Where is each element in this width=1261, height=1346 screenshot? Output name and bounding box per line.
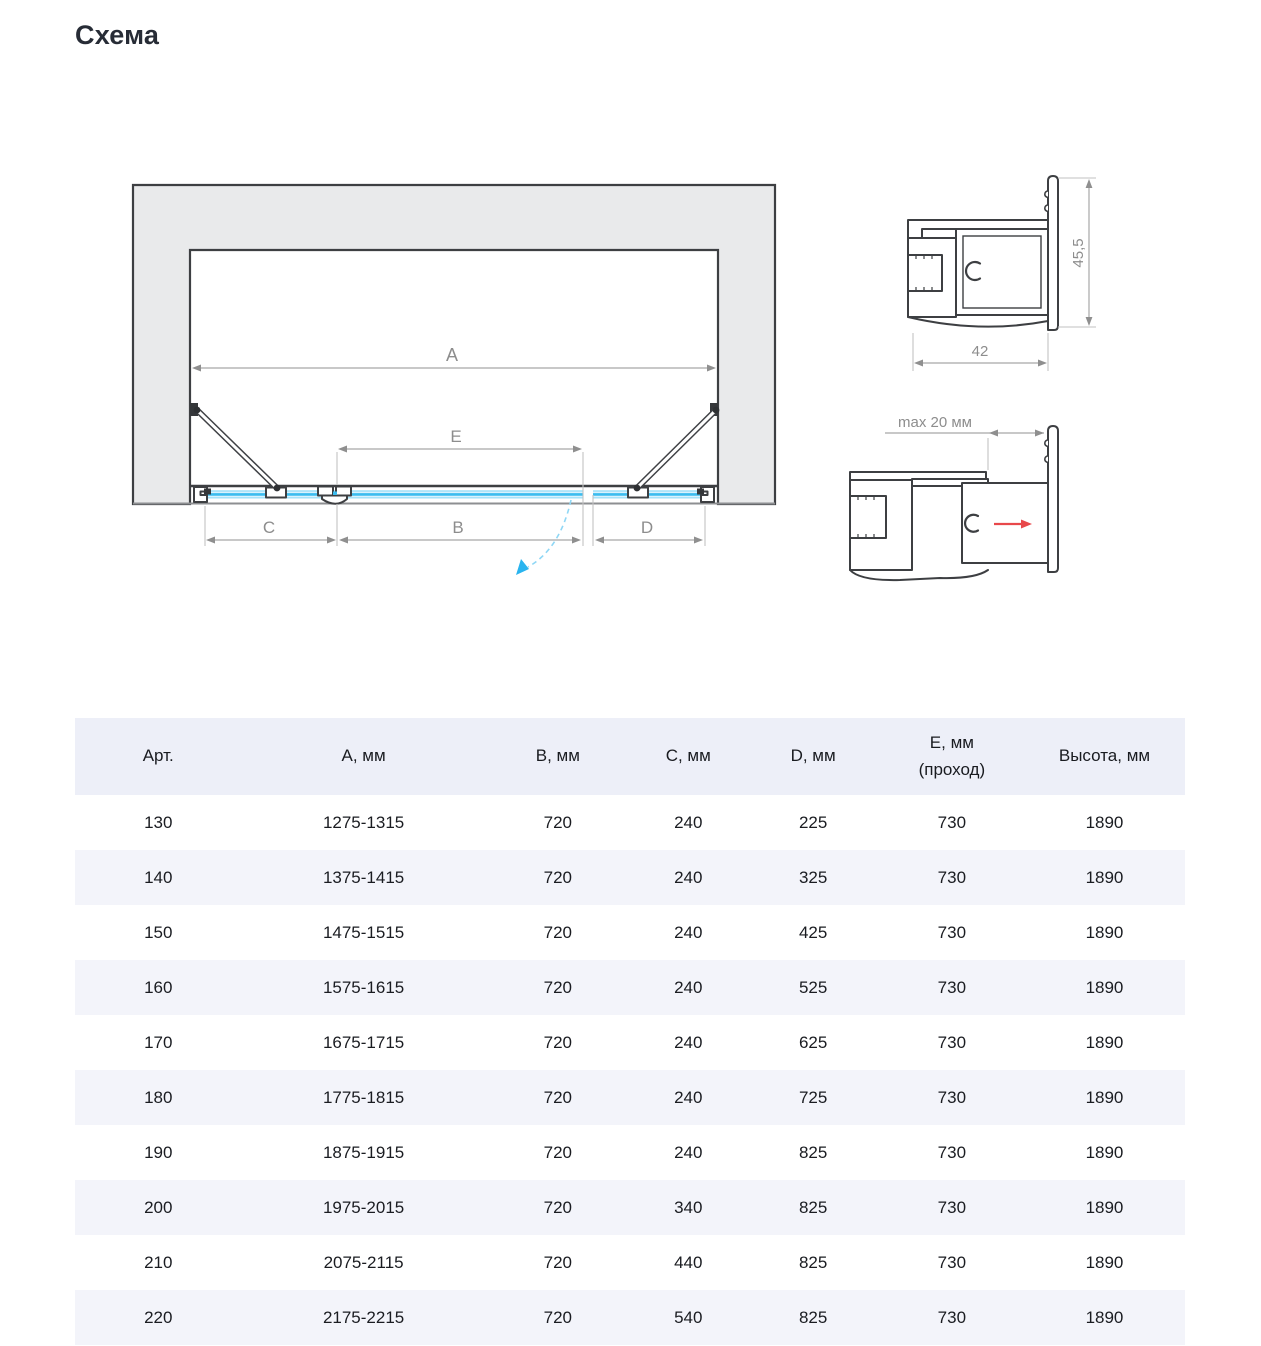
profile-detail-top: 45,5 42 xyxy=(908,176,1096,371)
table-row: 1901875-19157202408257301890 xyxy=(75,1125,1185,1180)
dimension-c: C xyxy=(205,506,336,546)
table-cell: 825 xyxy=(747,1125,880,1180)
table-cell: 200 xyxy=(75,1180,242,1235)
table-cell: 1675-1715 xyxy=(242,1015,486,1070)
table-cell: 625 xyxy=(747,1015,880,1070)
page: Схема A xyxy=(0,0,1261,1346)
table-cell: 1775-1815 xyxy=(242,1070,486,1125)
table-cell: 1890 xyxy=(1024,1015,1185,1070)
table-cell: 720 xyxy=(486,960,630,1015)
column-header: E, мм(проход) xyxy=(880,718,1024,795)
table-row: 1501475-15157202404257301890 xyxy=(75,905,1185,960)
table-cell: 720 xyxy=(486,795,630,850)
table-cell: 340 xyxy=(630,1180,747,1235)
table-cell: 1890 xyxy=(1024,795,1185,850)
dim-a-label: A xyxy=(446,345,458,365)
table-row: 1801775-18157202407257301890 xyxy=(75,1070,1185,1125)
table-body: 1301275-131572024022573018901401375-1415… xyxy=(75,795,1185,1345)
table-row: 2102075-21157204408257301890 xyxy=(75,1235,1185,1290)
dimension-a: A xyxy=(192,345,716,372)
table-cell: 210 xyxy=(75,1235,242,1290)
table-cell: 140 xyxy=(75,850,242,905)
size-table: Арт.A, ммB, ммC, ммD, ммE, мм(проход)Выс… xyxy=(75,718,1185,1345)
dim-arrow-right xyxy=(707,365,716,372)
table-cell: 730 xyxy=(880,1125,1024,1180)
table-cell: 1275-1315 xyxy=(242,795,486,850)
table-cell: 440 xyxy=(630,1235,747,1290)
table-cell: 220 xyxy=(75,1290,242,1345)
table-cell: 730 xyxy=(880,1235,1024,1290)
table-row: 2202175-22157205408257301890 xyxy=(75,1290,1185,1345)
table-cell: 240 xyxy=(630,905,747,960)
table-cell: 1890 xyxy=(1024,1180,1185,1235)
table-cell: 725 xyxy=(747,1070,880,1125)
table-cell: 720 xyxy=(486,1235,630,1290)
profile-detail-bottom: max 20 мм xyxy=(850,414,1058,580)
table-cell: 720 xyxy=(486,905,630,960)
table-cell: 540 xyxy=(630,1290,747,1345)
table-cell: 720 xyxy=(486,1070,630,1125)
table-cell: 190 xyxy=(75,1125,242,1180)
table-cell: 1575-1615 xyxy=(242,960,486,1015)
dimension-width-42: 42 xyxy=(913,333,1048,371)
table-cell: 730 xyxy=(880,1015,1024,1070)
column-header: C, мм xyxy=(630,718,747,795)
column-header: Высота, мм xyxy=(1024,718,1185,795)
table-cell: 730 xyxy=(880,850,1024,905)
table-cell: 2075-2115 xyxy=(242,1235,486,1290)
door-swing-arc xyxy=(516,500,571,575)
diagram-svg: A xyxy=(0,0,1261,660)
table-header-row: Арт.A, ммB, ммC, ммD, ммE, мм(проход)Выс… xyxy=(75,718,1185,795)
table-cell: 1475-1515 xyxy=(242,905,486,960)
table-cell: 1890 xyxy=(1024,960,1185,1015)
table-cell: 225 xyxy=(747,795,880,850)
table-row: 2001975-20157203408257301890 xyxy=(75,1180,1185,1235)
diagram: A xyxy=(0,0,1261,660)
dim-d-label: D xyxy=(641,518,653,537)
column-header: A, мм xyxy=(242,718,486,795)
column-header: B, мм xyxy=(486,718,630,795)
table-cell: 180 xyxy=(75,1070,242,1125)
max-gap-label: max 20 мм xyxy=(898,414,972,431)
table-cell: 325 xyxy=(747,850,880,905)
dim-arrow-left xyxy=(192,365,201,372)
table-row: 1601575-16157202405257301890 xyxy=(75,960,1185,1015)
table-row: 1401375-14157202403257301890 xyxy=(75,850,1185,905)
dimension-b: B xyxy=(339,518,581,544)
dimension-max-20: max 20 мм xyxy=(885,414,1044,470)
table-cell: 730 xyxy=(880,960,1024,1015)
table-cell: 1975-2015 xyxy=(242,1180,486,1235)
table-cell: 1890 xyxy=(1024,850,1185,905)
right-wall-profile xyxy=(697,487,714,502)
table-cell: 240 xyxy=(630,795,747,850)
left-strut xyxy=(190,403,280,491)
table-cell: 2175-2215 xyxy=(242,1290,486,1345)
dim-e-label: E xyxy=(450,427,461,446)
table-cell: 425 xyxy=(747,905,880,960)
table-cell: 730 xyxy=(880,1290,1024,1345)
column-header: Арт. xyxy=(75,718,242,795)
table-cell: 1875-1915 xyxy=(242,1125,486,1180)
table-cell: 720 xyxy=(486,1125,630,1180)
table-cell: 130 xyxy=(75,795,242,850)
table-cell: 720 xyxy=(486,1015,630,1070)
table-cell: 1890 xyxy=(1024,905,1185,960)
profile-height-label: 45,5 xyxy=(1070,238,1087,267)
table-cell: 1890 xyxy=(1024,1290,1185,1345)
table-cell: 160 xyxy=(75,960,242,1015)
table-row: 1301275-13157202402257301890 xyxy=(75,795,1185,850)
table-cell: 525 xyxy=(747,960,880,1015)
table-cell: 730 xyxy=(880,795,1024,850)
table-cell: 240 xyxy=(630,960,747,1015)
table-cell: 240 xyxy=(630,1070,747,1125)
dim-b-label: B xyxy=(452,518,463,537)
dimension-height-45-5: 45,5 xyxy=(1058,178,1096,327)
table-cell: 825 xyxy=(747,1290,880,1345)
dim-c-label: C xyxy=(263,518,275,537)
shower-top-view: A xyxy=(133,185,775,575)
table-cell: 150 xyxy=(75,905,242,960)
table-cell: 720 xyxy=(486,850,630,905)
table-cell: 720 xyxy=(486,1290,630,1345)
table-cell: 1375-1415 xyxy=(242,850,486,905)
left-wall-profile xyxy=(194,487,211,502)
table-cell: 170 xyxy=(75,1015,242,1070)
table-cell: 730 xyxy=(880,1180,1024,1235)
table-cell: 240 xyxy=(630,1015,747,1070)
table-row: 1701675-17157202406257301890 xyxy=(75,1015,1185,1070)
table-cell: 730 xyxy=(880,1070,1024,1125)
glass-panel-left xyxy=(204,491,583,499)
table-cell: 240 xyxy=(630,850,747,905)
table-cell: 1890 xyxy=(1024,1235,1185,1290)
table-cell: 1890 xyxy=(1024,1125,1185,1180)
profile-width-label: 42 xyxy=(972,343,989,360)
center-hinge-clamp xyxy=(318,487,351,504)
table-cell: 1890 xyxy=(1024,1070,1185,1125)
table-cell: 240 xyxy=(630,1125,747,1180)
table-cell: 720 xyxy=(486,1180,630,1235)
table-cell: 825 xyxy=(747,1180,880,1235)
swing-arrowhead xyxy=(516,559,529,575)
right-strut xyxy=(634,403,720,491)
table-cell: 730 xyxy=(880,905,1024,960)
table-cell: 825 xyxy=(747,1235,880,1290)
column-header: D, мм xyxy=(747,718,880,795)
